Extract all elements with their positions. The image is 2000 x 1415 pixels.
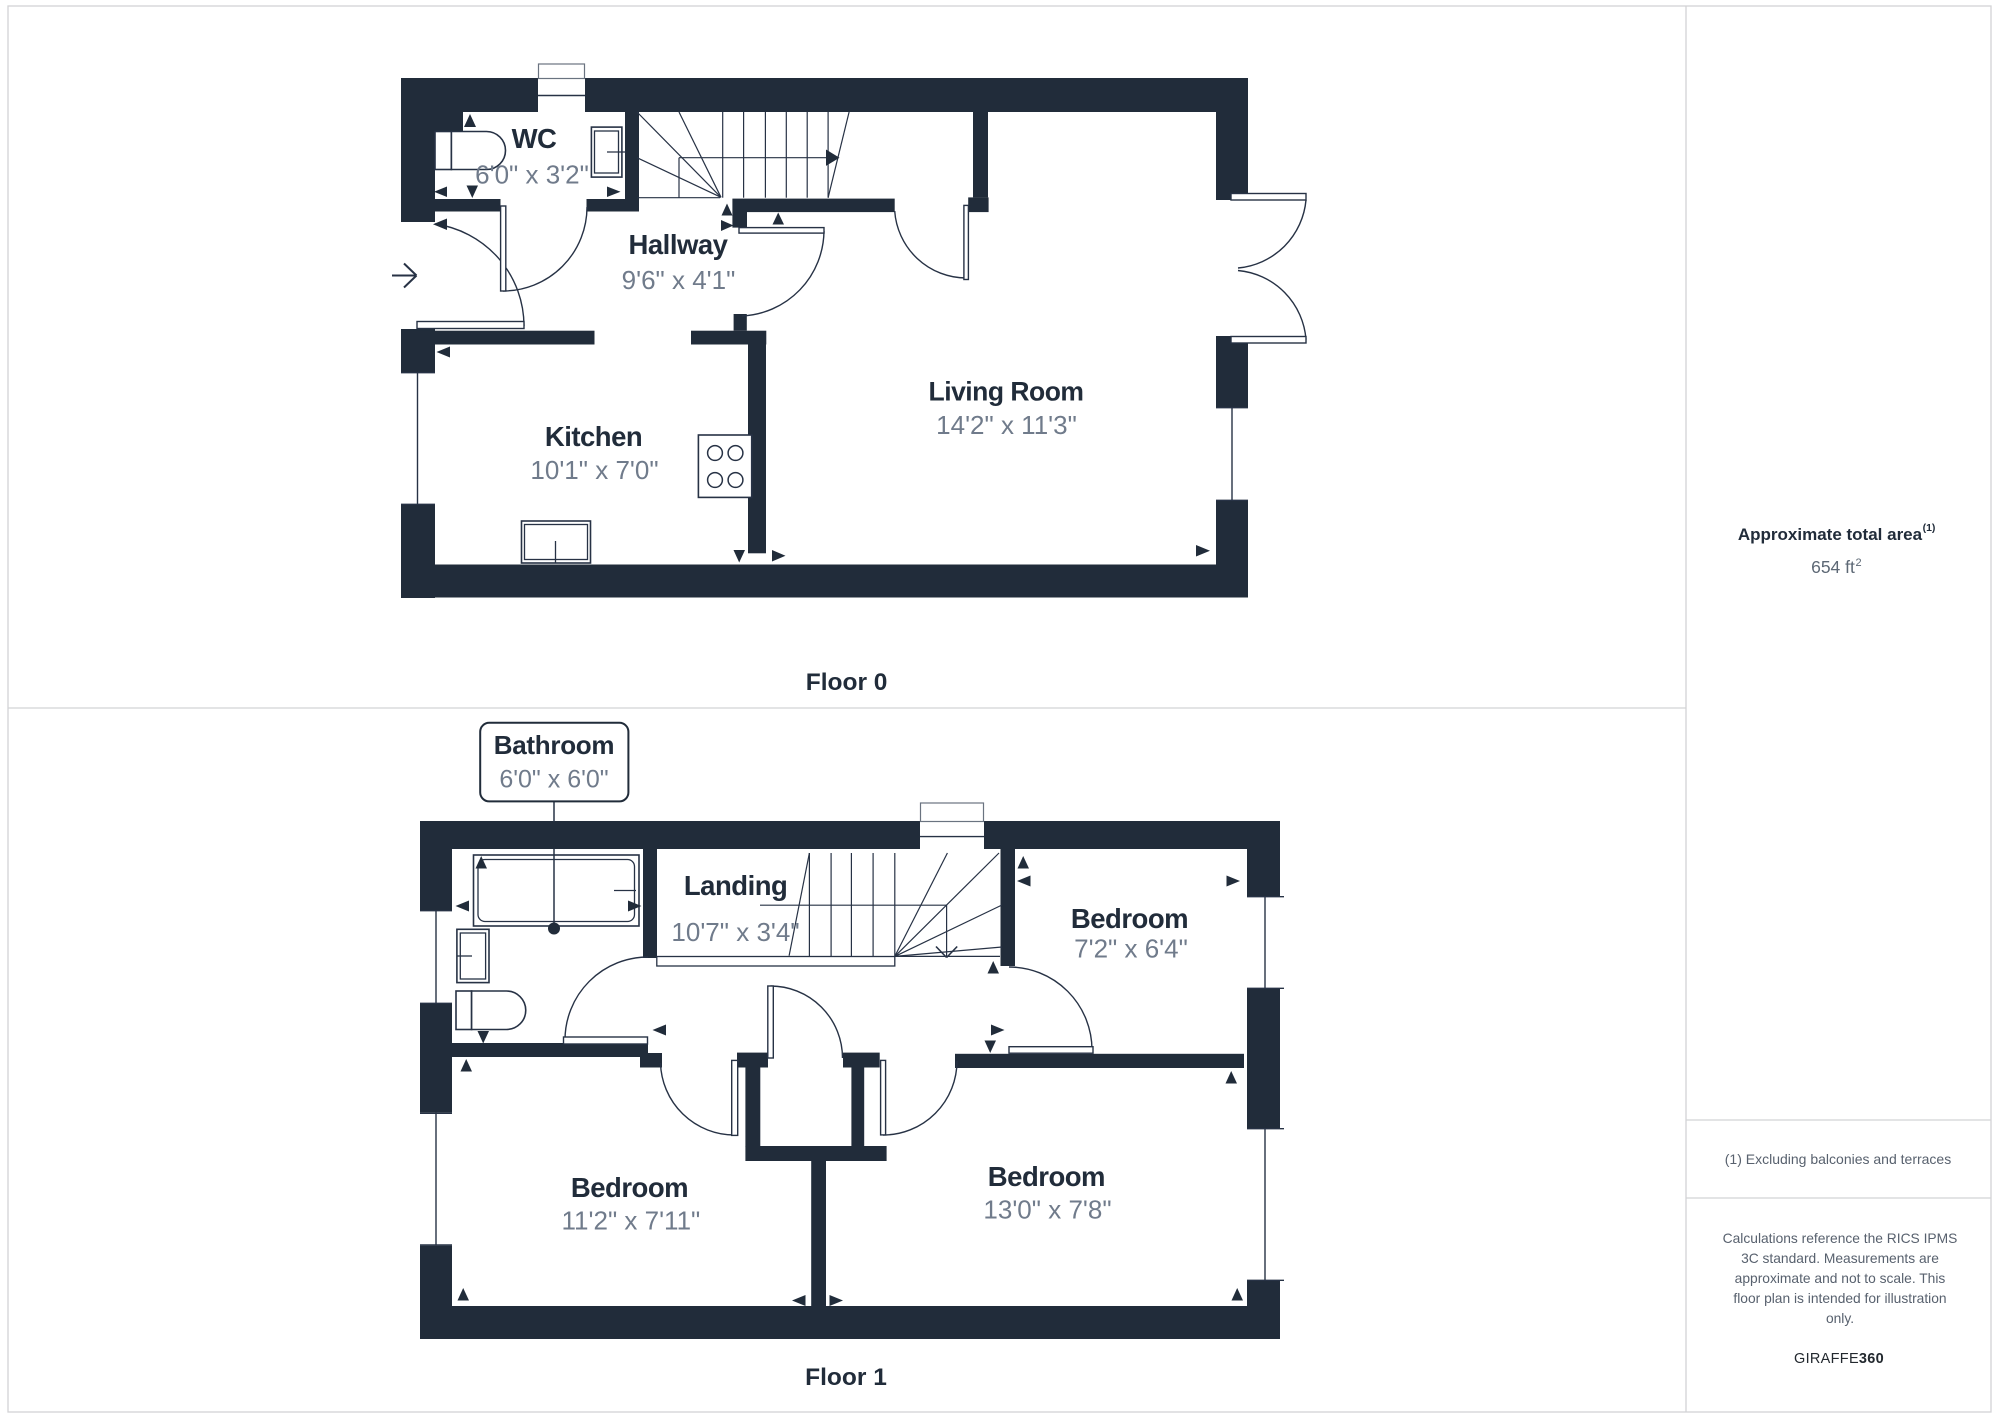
svg-text:10'1" x 7'0": 10'1" x 7'0" [530, 455, 658, 485]
svg-text:GIRAFFE360: GIRAFFE360 [1794, 1351, 1884, 1367]
svg-text:Living Room: Living Room [929, 377, 1084, 407]
svg-text:Floor 0: Floor 0 [806, 669, 888, 696]
svg-text:Calculations reference the RIC: Calculations reference the RICS IPMS [1723, 1231, 1958, 1246]
svg-text:WC: WC [512, 123, 557, 154]
svg-text:only.: only. [1826, 1311, 1854, 1326]
svg-text:Bathroom: Bathroom [494, 730, 614, 760]
svg-text:Floor 1: Floor 1 [805, 1364, 887, 1391]
svg-text:Kitchen: Kitchen [545, 421, 642, 452]
svg-text:Bedroom: Bedroom [571, 1172, 688, 1203]
svg-text:Approximate total area: Approximate total area [1738, 525, 1923, 544]
svg-text:10'7" x 3'4": 10'7" x 3'4" [671, 917, 799, 947]
svg-text:9'6" x 4'1": 9'6" x 4'1" [622, 265, 736, 295]
svg-text:floor plan is intended for ill: floor plan is intended for illustration [1733, 1291, 1946, 1306]
svg-text:Hallway: Hallway [629, 229, 729, 260]
svg-text:7'2" x 6'4": 7'2" x 6'4" [1074, 934, 1188, 964]
svg-text:2: 2 [1855, 557, 1861, 569]
svg-text:654 ft: 654 ft [1811, 557, 1855, 577]
svg-text:6'0" x 6'0": 6'0" x 6'0" [499, 766, 608, 794]
svg-text:(1) Excluding balconies and te: (1) Excluding balconies and terraces [1725, 1151, 1951, 1167]
svg-text:14'2" x 11'3": 14'2" x 11'3" [936, 410, 1077, 440]
svg-text:6'0" x 3'2": 6'0" x 3'2" [475, 160, 589, 190]
svg-text:Bedroom: Bedroom [988, 1161, 1105, 1192]
svg-text:Landing: Landing [684, 870, 787, 901]
svg-text:3C standard. Measurements are: 3C standard. Measurements are [1741, 1251, 1939, 1266]
svg-text:13'0" x 7'8": 13'0" x 7'8" [983, 1195, 1111, 1225]
svg-text:Bedroom: Bedroom [1071, 903, 1188, 934]
svg-text:11'2" x 7'11": 11'2" x 7'11" [562, 1206, 701, 1236]
svg-text:(1): (1) [1923, 522, 1936, 534]
svg-text:approximate and not to scale.: approximate and not to scale. This [1735, 1271, 1946, 1286]
